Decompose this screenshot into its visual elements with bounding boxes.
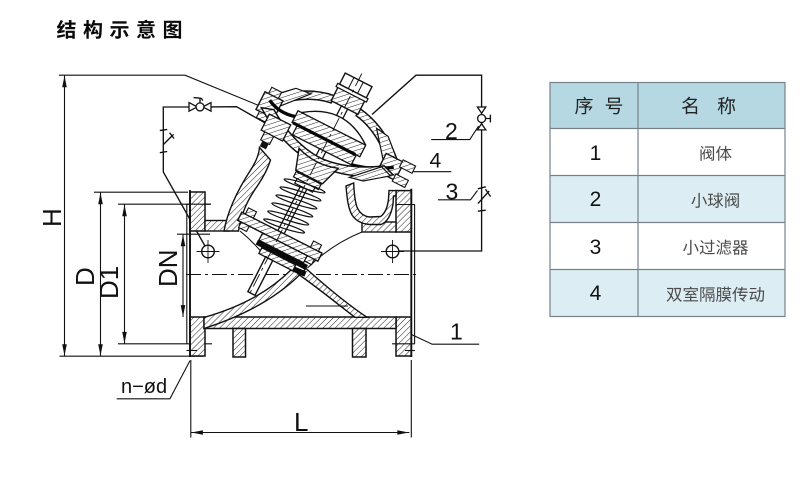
- svg-text:L: L: [294, 407, 308, 437]
- svg-text:2: 2: [590, 188, 602, 211]
- svg-text:H: H: [37, 208, 67, 227]
- svg-text:DN: DN: [153, 249, 183, 287]
- svg-text:4: 4: [590, 282, 602, 305]
- svg-text:1: 1: [590, 142, 602, 165]
- svg-text:D1: D1: [94, 266, 124, 299]
- svg-text:1: 1: [450, 319, 463, 345]
- svg-text:3: 3: [590, 236, 602, 259]
- svg-text:4: 4: [430, 150, 442, 173]
- svg-text:3: 3: [446, 179, 459, 205]
- svg-text:n−ød: n−ød: [121, 376, 167, 398]
